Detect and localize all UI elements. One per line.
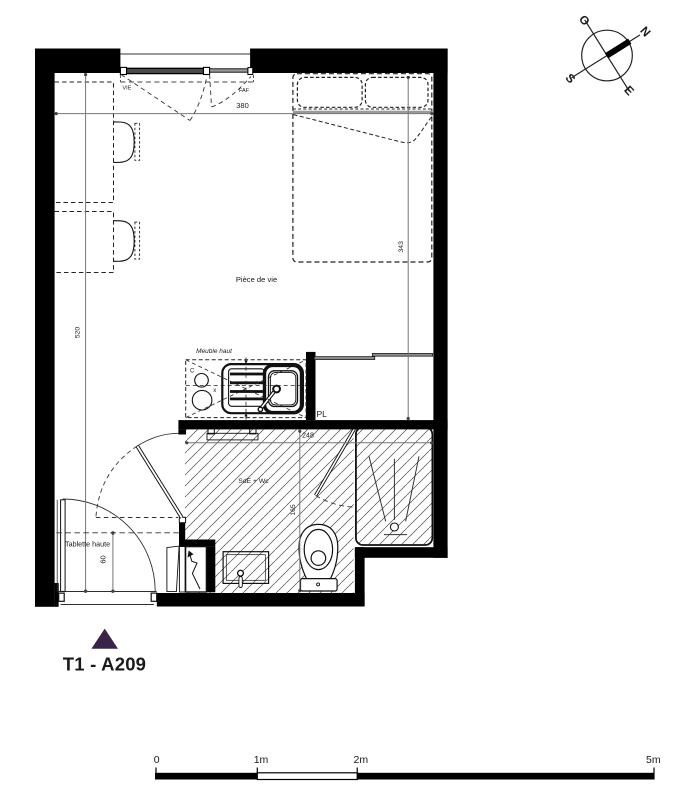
svg-text:248: 248 — [302, 433, 314, 440]
svg-text:380: 380 — [236, 101, 249, 110]
svg-text:Tablette haute: Tablette haute — [65, 540, 110, 549]
svg-text:FAF: FAF — [239, 88, 250, 94]
svg-text:Meuble haut: Meuble haut — [196, 348, 233, 355]
svg-text:2m: 2m — [354, 754, 369, 766]
svg-text:N: N — [637, 24, 653, 40]
svg-text:T1 - A209: T1 - A209 — [63, 654, 146, 675]
svg-text:Pièce de vie: Pièce de vie — [236, 275, 277, 284]
svg-text:E: E — [621, 83, 637, 98]
svg-text:0: 0 — [154, 754, 160, 766]
svg-text:O: O — [576, 12, 593, 28]
svg-text:x: x — [213, 388, 216, 394]
svg-text:5m: 5m — [646, 754, 661, 766]
svg-text:343: 343 — [398, 241, 405, 253]
svg-text:1m: 1m — [254, 754, 269, 766]
svg-text:C: C — [190, 369, 195, 375]
svg-text:S: S — [563, 71, 579, 86]
svg-text:PL: PL — [317, 409, 328, 419]
svg-text:520: 520 — [75, 327, 82, 339]
svg-text:SdE + Wc: SdE + Wc — [238, 478, 269, 485]
svg-text:60: 60 — [98, 555, 107, 563]
svg-text:165: 165 — [290, 504, 297, 516]
svg-text:VIE: VIE — [123, 86, 132, 92]
